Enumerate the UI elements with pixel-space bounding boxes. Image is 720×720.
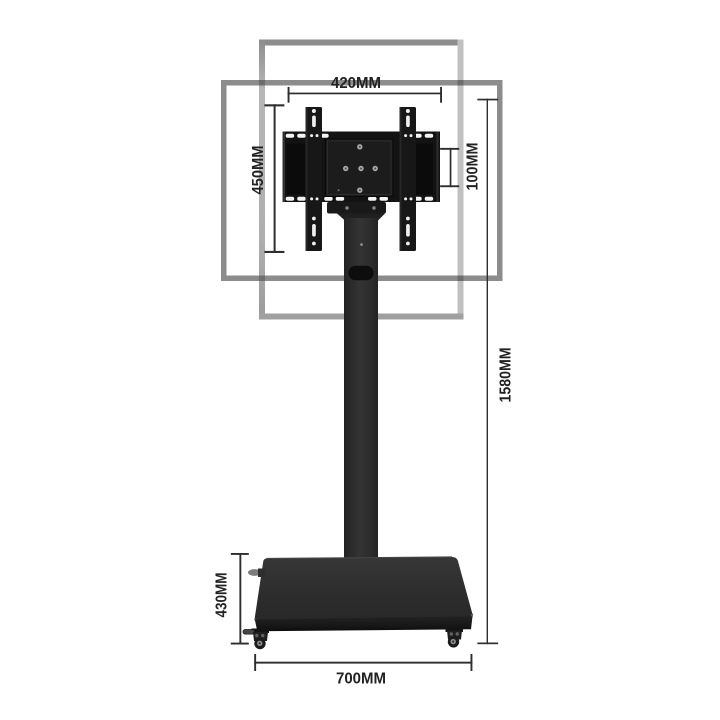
svg-text:100MM: 100MM: [464, 143, 481, 191]
svg-text:420MM: 420MM: [331, 75, 381, 92]
svg-text:450MM: 450MM: [250, 146, 267, 195]
svg-text:700MM: 700MM: [336, 671, 386, 688]
svg-text:430MM: 430MM: [213, 573, 230, 618]
svg-text:1580MM: 1580MM: [498, 348, 515, 403]
